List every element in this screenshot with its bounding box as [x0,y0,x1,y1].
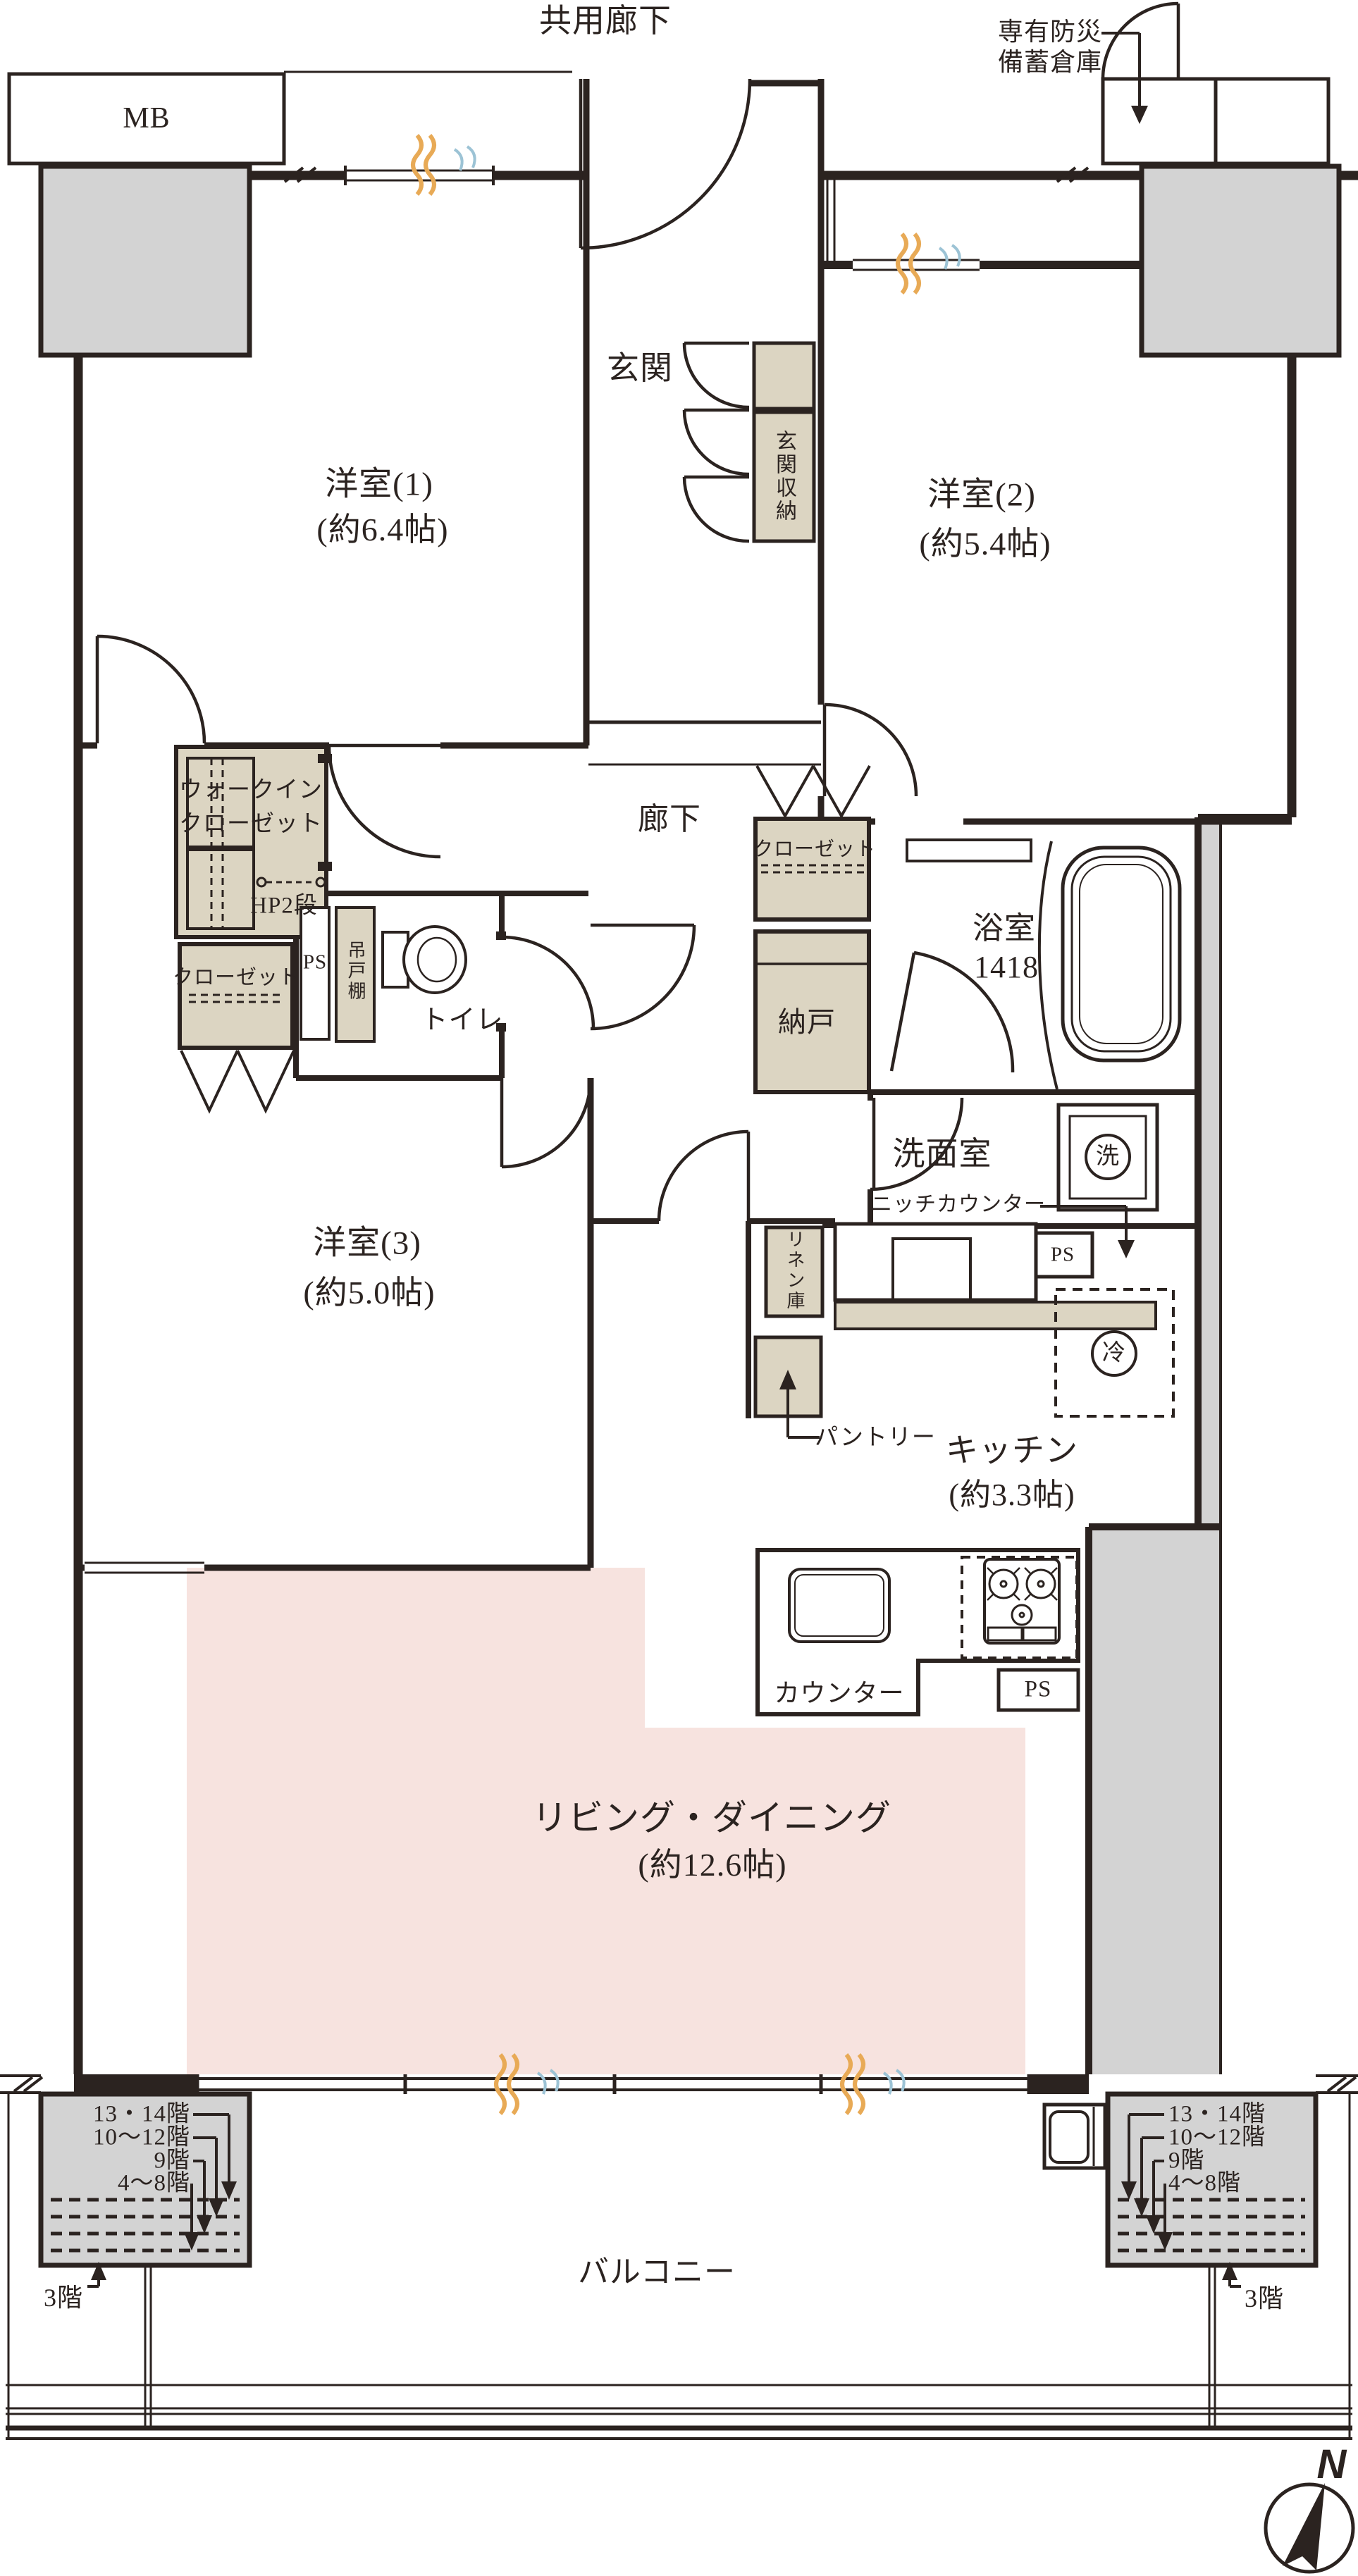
label-kitchen-size: (約3.3帖) [949,1480,1075,1511]
label-living-dining-name: リビング・ダイニング [532,1800,891,1835]
label-balcony: バルコニー [578,2257,736,2288]
label-meter-box: MB [123,104,170,133]
label-floors-right-3: 9階 [1168,2150,1205,2173]
vanity-counter [835,1224,1036,1300]
label-third-floor-right: 3階 [1245,2286,1284,2311]
label-bathroom-name: 浴室 [973,913,1036,944]
label-kitchen-name: キッチン [946,1435,1078,1467]
label-pipe-space-2: PS [1051,1245,1075,1265]
label-room2-name: 洋室(2) [927,479,1036,512]
label-room3-name: 洋室(3) [313,1227,421,1261]
label-third-floor-left: 3階 [44,2285,83,2310]
label-pipe-space-1: PS [303,953,327,973]
label-disaster-storage-2: 備蓄倉庫 [998,49,1102,75]
label-floors-left-1: 13・14階 [93,2103,190,2126]
bath-shelf [907,840,1031,861]
entrance-storage-upper [754,343,814,409]
closet2-box [755,819,869,919]
floorplan-drawing [0,0,1358,2576]
label-wic-2: クローゼット [179,813,323,836]
pipe-space-1 [301,908,329,1039]
label-linen: リネン庫 [785,1230,803,1311]
label-entrance-storage: 玄関収納 [773,430,794,523]
label-wic-hp: HP2段 [250,895,318,918]
pillar-top-right [1142,166,1339,355]
label-bathroom-size: 1418 [974,952,1039,983]
label-hanging-cabinet: 吊戸棚 [346,941,364,1002]
label-pantry: パントリー [815,1427,936,1450]
label-disaster-storage-1: 専有防災 [998,19,1102,44]
label-room2-size: (約5.4帖) [919,528,1051,560]
label-north: N [1317,2444,1347,2485]
label-common-corridor: 共用廊下 [539,5,672,37]
label-counter: カウンター [774,1680,904,1706]
label-entrance: 玄関 [607,352,673,385]
label-hallway: 廊下 [638,804,701,835]
label-floors-left-4: 4〜8階 [118,2172,190,2196]
front-door-arc [581,79,750,248]
label-toilet: トイレ [421,1007,503,1034]
label-floors-right-1: 13・14階 [1168,2103,1266,2126]
compass [1266,2483,1353,2572]
label-closet3: クローゼット [173,968,300,989]
label-fridge: 冷 [1102,1342,1126,1366]
label-washer: 洗 [1096,1146,1120,1169]
pillar-top-left [41,166,249,355]
floorplan-page: 共用廊下 専有防災 備蓄倉庫 MB 洋室(1) (約6.4帖) 玄関 玄関収納 … [0,0,1358,2576]
label-floors-right-4: 4〜8階 [1168,2172,1241,2196]
label-pipe-space-3: PS [1025,1678,1052,1702]
label-room3-size: (約5.0帖) [303,1277,435,1309]
label-floors-left-2: 10〜12階 [93,2126,190,2150]
label-wic-1: ウォークイン [179,779,323,803]
label-room1-size: (約6.4帖) [316,514,448,546]
label-niche-counter: ニッチカウンター [871,1194,1046,1215]
label-floors-left-3: 9階 [154,2150,191,2173]
compass-needle [1283,2483,1325,2570]
label-living-dining-size: (約12.6帖) [638,1849,786,1881]
label-storage-room: 納戸 [778,1008,836,1036]
kitchen-sink [789,1569,889,1642]
label-room1-name: 洋室(1) [325,469,433,502]
label-floors-right-2: 10〜12階 [1168,2126,1266,2150]
niche-counter-strip [835,1302,1156,1329]
label-washroom: 洗面室 [893,1138,992,1170]
label-closet2: クローゼット [753,840,876,860]
